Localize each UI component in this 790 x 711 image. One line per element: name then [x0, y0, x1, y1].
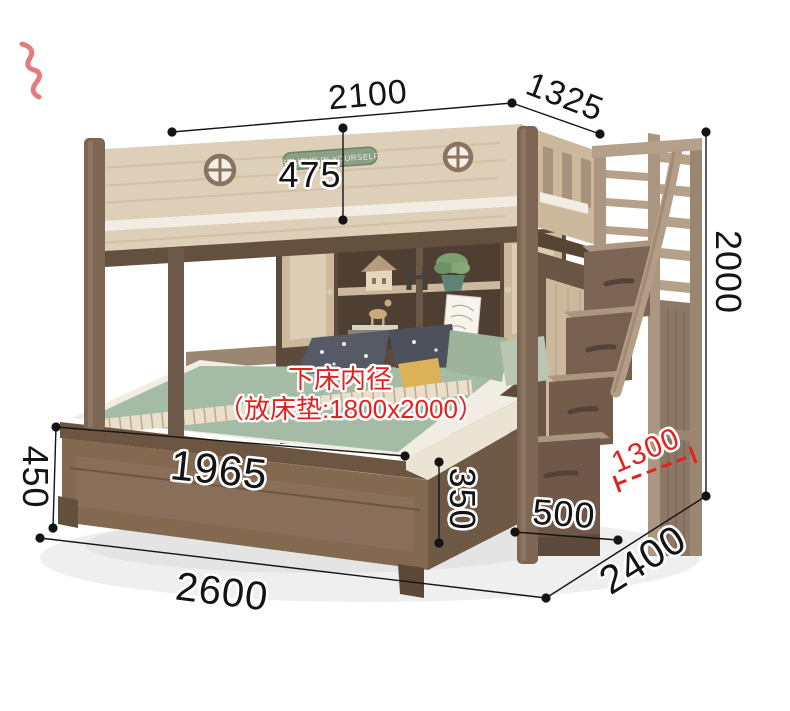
dimension-endpoint-dot	[35, 533, 44, 542]
note-line-2: （放床垫:1800x2000）	[218, 394, 484, 424]
lower-bed-inner-size-note: 下床内径 （放床垫:1800x2000）	[218, 364, 484, 424]
dimension-label-overall-length: 2600	[173, 566, 270, 617]
dimension-label-stair-depth: 500	[531, 494, 596, 534]
dimension-endpoint-dot	[701, 127, 710, 136]
dimension-endpoint-dot	[434, 457, 443, 466]
dimension-overall-length	[35, 533, 550, 602]
dimension-endpoint-dot	[338, 123, 347, 132]
dimension-label-upper-bed-length: 2100	[327, 75, 409, 116]
dimension-endpoint-dot	[595, 129, 604, 138]
dimension-label-overall-height: 2000	[710, 230, 746, 314]
note-line-1: 下床内径	[288, 364, 484, 394]
dimension-endpoint-dot	[434, 538, 443, 547]
dimension-label-lower-bed-length: 1965	[168, 444, 269, 496]
dimension-label-footboard-height: 450	[17, 445, 53, 508]
bed-dimension-diagram: H	[0, 0, 790, 711]
dimension-label-guardrail-height: 475	[278, 157, 341, 193]
dimension-endpoint-dot	[48, 523, 57, 532]
dimension-endpoint-dot	[613, 535, 622, 544]
dimension-endpoint-dot	[338, 215, 347, 224]
dimension-endpoint-dot	[167, 127, 176, 136]
dimension-label-bed-base-height: 350	[444, 467, 480, 530]
dimension-endpoint-dot	[400, 451, 409, 460]
dimension-endpoint-dot	[510, 527, 519, 536]
